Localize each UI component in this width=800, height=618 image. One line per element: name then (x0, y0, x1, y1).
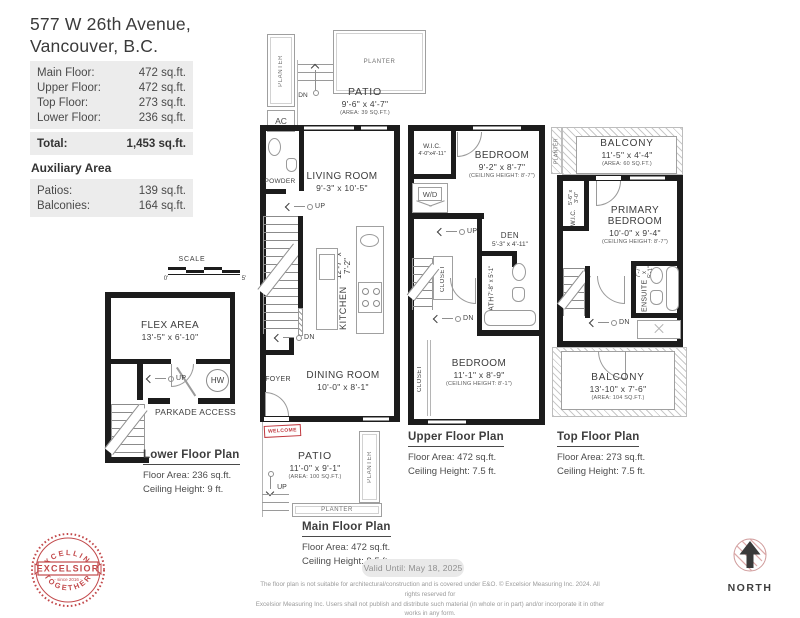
down-walk-arrow: DN (434, 315, 474, 322)
north-label: NORTH (727, 582, 773, 594)
door-arc (597, 276, 625, 304)
room-dims: 13'-5" x 6'-10" (115, 332, 225, 342)
down-arrow-line (315, 70, 316, 90)
row-value: 472 sq.ft. (139, 82, 186, 94)
walk-dot (268, 471, 274, 477)
wall (196, 359, 235, 364)
dn-label: DN (619, 319, 630, 326)
room-dims: 9'-3" x 10'-5" (303, 183, 381, 193)
room-dims: 11'-0" x 9'-1" (270, 463, 360, 473)
door-arc (596, 181, 621, 206)
total-block: Total:1,453 sq.ft. (30, 132, 193, 155)
foyer-label: FOYER (262, 376, 294, 383)
chevron-icon (274, 333, 282, 341)
chevron-icon (437, 227, 445, 235)
logo-banner-text: EXCELSIOR (37, 564, 100, 574)
closet-text: CLOSET (417, 365, 423, 392)
area-summary-table: Main Floor:472 sq.ft. Upper Floor:472 sq… (30, 61, 193, 217)
chevron-icon (433, 314, 441, 322)
lower-floor-caption: Lower Floor Plan Floor Area: 236 sq.ft. … (143, 445, 240, 497)
walk-dot (459, 229, 465, 235)
toilet-icon (512, 287, 525, 302)
wall (477, 330, 545, 336)
scale-label: SCALE (172, 256, 212, 263)
planter-label: PLANTER (364, 59, 396, 65)
wall (584, 181, 589, 231)
top-floor-caption: Top Floor Plan Floor Area: 273 sq.ft. Ce… (557, 427, 645, 479)
chevron-icon (146, 374, 154, 382)
disclaimer-line: Excelsior Measuring Inc. Users shall not… (255, 600, 605, 618)
parkade-access-label: PARKADE ACCESS (148, 407, 243, 417)
kitchen-sink-icon (360, 234, 379, 247)
plan-floor-area: Floor Area: 472 sq.ft. (408, 451, 504, 465)
closet-door-line (427, 340, 428, 416)
chevron-icon (285, 202, 293, 210)
welcome-mat: WELCOME (264, 424, 301, 438)
wall (585, 266, 590, 318)
room-area: (AREA: 104 SQ.FT.) (570, 395, 666, 401)
room-name: BALCONY (580, 138, 674, 149)
row-label: Upper Floor: (37, 82, 101, 94)
logo-since-text: - since 2016 - (54, 577, 82, 582)
room-area: (AREA: 100 SQ.FT.) (270, 474, 360, 480)
down-walk-arrow: DN (275, 334, 315, 341)
walk-dot (168, 376, 174, 382)
flex-area-label: FLEX AREA 13'-5" x 6'-10" (115, 320, 225, 342)
plan-title: Top Floor Plan (557, 431, 639, 447)
bathtub-icon (666, 266, 679, 311)
hw-label: HW (211, 376, 224, 385)
walk-line (446, 231, 457, 232)
window (361, 126, 387, 130)
plan-title: Lower Floor Plan (143, 449, 240, 465)
entry-door-arc (265, 392, 289, 416)
wall (230, 292, 235, 404)
planter-box: PLANTER (333, 30, 426, 94)
up-label: UP (274, 484, 290, 491)
planter-text: PLANTER (554, 138, 560, 164)
room-dims: 4'-0"x4'-11" (412, 151, 452, 157)
closet-text: CLOSET (440, 265, 446, 292)
den-label: DEN 5'-3" x 4'-11" (486, 231, 534, 248)
floor-plan-sheet: 577 W 26th Avenue, Vancouver, B.C. Main … (0, 0, 800, 618)
page-title: 577 W 26th Avenue, Vancouver, B.C. (30, 14, 191, 58)
wall (477, 251, 517, 256)
wall (298, 216, 303, 308)
planter-label: PLANTER (321, 507, 353, 513)
room-dims: 13'-10" x 7'-6" (570, 384, 666, 394)
window (304, 126, 354, 130)
patio-bottom-label: PATIO 11'-0" x 9'-1" (AREA: 100 SQ.FT.) (270, 450, 360, 480)
entry-opening (264, 417, 289, 421)
room-dims: 10'-0" x 9'-4" (590, 228, 680, 238)
bedroom2-label: BEDROOM 11'-1" x 8'-9" (CEILING HEIGHT: … (425, 358, 533, 387)
wall (394, 125, 400, 422)
room-ceiling: (CEILING HEIGHT: 8'-1") (425, 381, 533, 387)
total-label: Total: (37, 138, 67, 150)
closet-label: CLOSET (435, 258, 451, 298)
row-label: Main Floor: (37, 67, 95, 79)
plan-floor-area: Floor Area: 472 sq.ft. (302, 541, 391, 555)
room-ceiling: (CEILING HEIGHT: 8'-7") (590, 239, 680, 245)
room-dims: 10'-0" x 8'-1" (303, 382, 383, 392)
door-opening (596, 176, 621, 180)
plan-floor-area: Floor Area: 236 sq.ft. (143, 469, 240, 483)
half-wall (298, 308, 303, 336)
room-dims: 5'-3" x 4'-11" (486, 241, 534, 248)
closet-label: CLOSET (414, 356, 426, 400)
sink-icon (650, 267, 663, 284)
table-row: Main Floor:472 sq.ft. (30, 65, 193, 80)
plan-title: Upper Floor Plan (408, 431, 504, 447)
row-label: Balconies: (37, 200, 90, 212)
row-label: Top Floor: (37, 97, 88, 109)
walk-dot (296, 335, 302, 341)
patio-top-label: PATIO 9'-6" x 4'-7" (AREA: 39 SQ.FT.) (320, 86, 410, 116)
bathtub-icon (484, 310, 536, 326)
table-row: Balconies:164 sq.ft. (30, 198, 193, 213)
planter-box: PLANTER (292, 503, 382, 517)
burner-dot (373, 288, 380, 295)
powder-label: POWDER (261, 178, 299, 185)
wall (631, 313, 683, 318)
exterior-steps (262, 494, 289, 518)
toilet-icon (286, 158, 297, 172)
wall (563, 226, 589, 231)
planter-label: PLANTER (551, 130, 562, 172)
window (473, 126, 521, 130)
planter-label: PLANTER (278, 55, 284, 87)
walk-dot (611, 320, 617, 326)
row-label: Patios: (37, 185, 72, 197)
auxiliary-area-heading: Auxiliary Area (30, 155, 193, 179)
balcony-top-label: BALCONY 11'-5" x 4'-4" (AREA: 60 SQ.FT.) (580, 138, 674, 167)
walk-line (442, 318, 453, 319)
room-dims: 7'-8" x 5'-1" (489, 266, 495, 296)
room-name: W.I.C. (571, 210, 577, 226)
row-value: 236 sq.ft. (139, 112, 186, 124)
window (363, 417, 389, 421)
room-name: DEN (486, 231, 534, 240)
room-area: (AREA: 60 SQ.FT.) (580, 161, 674, 167)
wall (289, 338, 294, 355)
row-value: 139 sq.ft. (139, 185, 186, 197)
row-value: 164 sq.ft. (139, 200, 186, 212)
dn-label: DN (463, 315, 474, 322)
room-name: PATIO (320, 86, 410, 98)
room-dims: 11'-5" x 4'-4" (580, 150, 674, 160)
wic-label: W.I.C. 4'-0"x4'-11" (412, 143, 452, 157)
up-label: UP (315, 203, 325, 210)
walk-line (598, 322, 609, 323)
address-line-1: 577 W 26th Avenue, (30, 14, 191, 36)
planter-box: PLANTER (359, 431, 380, 503)
window (428, 420, 466, 424)
room-dims: 5'-6" x 3'-0" (568, 186, 580, 209)
excelsior-logo: EXCELLING TOGETHER EXCELSIOR - since 201… (28, 530, 108, 615)
room-name: BEDROOM (462, 150, 542, 161)
north-indicator (727, 536, 773, 583)
up-label: UP (176, 375, 186, 382)
total-value: 1,453 sq.ft. (127, 138, 186, 150)
table-row: Patios:139 sq.ft. (30, 183, 193, 198)
floor-areas-block: Main Floor:472 sq.ft. Upper Floor:472 sq… (30, 61, 193, 129)
room-name: FLEX AREA (115, 320, 225, 331)
wall (148, 398, 170, 404)
up-walk-arrow: UP (147, 375, 186, 382)
room-ceiling: (CEILING HEIGHT: 8'-7") (462, 173, 542, 179)
room-name: DINING ROOM (303, 370, 383, 381)
walk-dot (455, 316, 461, 322)
wall (408, 213, 484, 219)
disclaimer: The floor plan is not suitable for archi… (255, 580, 605, 618)
dn-label: DN (304, 334, 315, 341)
room-name: PATIO (270, 450, 360, 462)
walk-dot (313, 90, 319, 96)
room-name: KITCHEN (338, 286, 348, 330)
wall (198, 398, 235, 404)
balcony-bottom-label: BALCONY 13'-10" x 7'-6" (AREA: 104 SQ.FT… (570, 372, 666, 401)
scale-bar (168, 267, 240, 275)
scale-bar-lower (168, 270, 240, 273)
table-row: Top Floor:273 sq.ft. (30, 95, 193, 110)
scale-zero: 0' (160, 276, 172, 282)
valid-until-text: Valid Until: May 18, 2025 (364, 563, 463, 573)
window (630, 176, 665, 180)
down-walk-arrow: DN (590, 319, 630, 326)
up-walk-arrow: UP (286, 203, 325, 210)
sink-icon (268, 138, 281, 156)
wall (266, 189, 286, 194)
room-area: (AREA: 39 SQ.FT.) (320, 110, 410, 116)
address-line-2: Vancouver, B.C. (30, 36, 191, 58)
up-walk-arrow: UP (438, 228, 477, 235)
room-dims: 9'-6" x 4'-7" (320, 99, 410, 109)
dining-room-label: DINING ROOM 10'-0" x 8'-1" (303, 370, 383, 392)
room-name: W.I.C. (412, 143, 452, 150)
room-name: BEDROOM (425, 358, 533, 369)
door-arc (450, 278, 476, 304)
hot-water-tank: HW (206, 369, 229, 392)
burner-dot (362, 288, 369, 295)
total-row: Total:1,453 sq.ft. (30, 136, 193, 151)
row-value: 273 sq.ft. (139, 97, 186, 109)
room-name: PRIMARY BEDROOM (590, 205, 680, 227)
dn-label: DN (296, 92, 310, 99)
toilet-icon (650, 290, 663, 305)
wd-label: W/D (423, 190, 438, 199)
chevron-icon (589, 318, 597, 326)
stove-burners (362, 287, 378, 308)
room-name: LIVING ROOM (303, 171, 381, 182)
table-row: Lower Floor:236 sq.ft. (30, 110, 193, 125)
washer-dryer-label-box: W/D (418, 187, 442, 201)
wall (105, 292, 235, 298)
upper-floor-caption: Upper Floor Plan Floor Area: 472 sq.ft. … (408, 427, 504, 479)
valid-until-badge: Valid Until: May 18, 2025 (362, 559, 464, 577)
room-name: BALCONY (570, 372, 666, 383)
sink-icon (512, 263, 526, 281)
closet-door-line (430, 340, 431, 416)
walk-dot (307, 204, 313, 210)
disclaimer-line: The floor plan is not suitable for archi… (255, 580, 605, 600)
auxiliary-block: Patios:139 sq.ft. Balconies:164 sq.ft. (30, 179, 193, 217)
row-value: 472 sq.ft. (139, 67, 186, 79)
room-name: ENSUITE (642, 280, 649, 312)
room-dims: 11'-1" x 8'-9" (425, 370, 533, 380)
row-label: Lower Floor: (37, 112, 101, 124)
walk-line (155, 378, 166, 379)
up-label: UP (467, 228, 477, 235)
walk-line (294, 206, 305, 207)
scale-five: 5' (238, 276, 250, 282)
plan-ceiling-height: Ceiling Height: 7.5 ft. (408, 465, 504, 479)
plan-title: Main Floor Plan (302, 521, 391, 537)
wall (137, 364, 143, 400)
plan-floor-area: Floor Area: 273 sq.ft. (557, 451, 645, 465)
bedroom1-label: BEDROOM 9'-2" x 8'-7" (CEILING HEIGHT: 8… (462, 150, 542, 179)
room-dims: 9'-2" x 8'-7" (462, 162, 542, 172)
wall (414, 174, 456, 179)
table-row: Upper Floor:472 sq.ft. (30, 80, 193, 95)
living-room-label: LIVING ROOM 9'-3" x 10'-5" (303, 171, 381, 193)
primary-bedroom-label: PRIMARY BEDROOM 10'-0" x 9'-4" (CEILING … (590, 205, 680, 245)
burner-dot (362, 300, 369, 307)
island-sink (319, 254, 335, 280)
plan-ceiling-height: Ceiling Height: 9 ft. (143, 483, 240, 497)
planter-label: PLANTER (367, 451, 373, 483)
wall (477, 256, 482, 336)
wic-label: W.I.C. 5'-6" x 3'-0" (564, 186, 584, 226)
plan-ceiling-height: Ceiling Height: 7.5 ft. (557, 465, 645, 479)
planter-box: PLANTER (267, 34, 295, 107)
wall (557, 175, 563, 347)
